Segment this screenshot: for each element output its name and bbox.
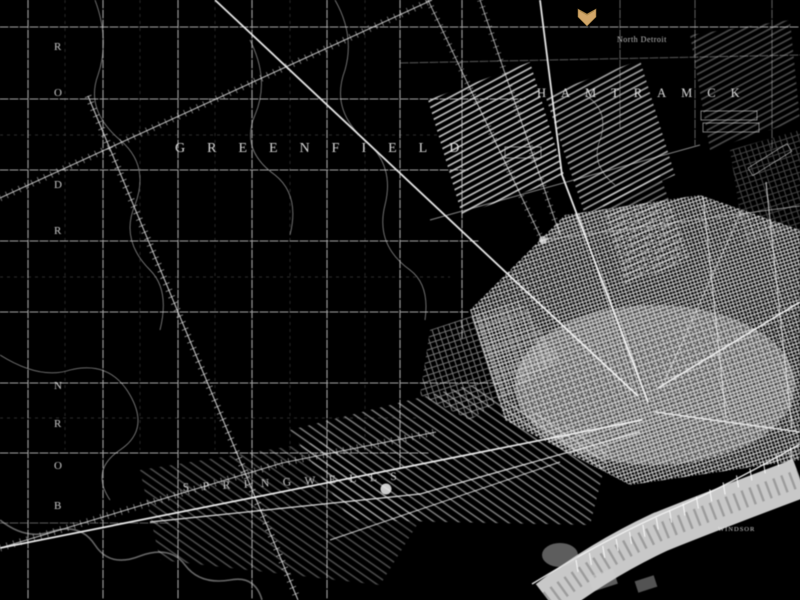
edge-letter: D	[54, 179, 62, 191]
detroit-map-image: GREENFIELD HAMTRAMCK SPRINGWELLS North D…	[0, 0, 800, 600]
edge-letter: O	[54, 87, 62, 99]
edge-letter: R	[54, 225, 62, 237]
label-north-detroit: North Detroit	[617, 35, 667, 44]
label-greenfield: GREENFIELD	[175, 141, 481, 156]
rail-junction-blob	[381, 484, 392, 495]
edge-letter: R	[54, 418, 62, 430]
label-windsor: WINDSOR	[718, 526, 755, 533]
edge-letter: R	[54, 41, 62, 53]
edge-letter: O	[54, 460, 62, 472]
edge-letter: N	[54, 380, 62, 392]
edge-letter: B	[54, 500, 61, 512]
map-viewport: GREENFIELD HAMTRAMCK SPRINGWELLS North D…	[0, 0, 800, 600]
label-hamtramck: HAMTRAMCK	[537, 86, 755, 100]
